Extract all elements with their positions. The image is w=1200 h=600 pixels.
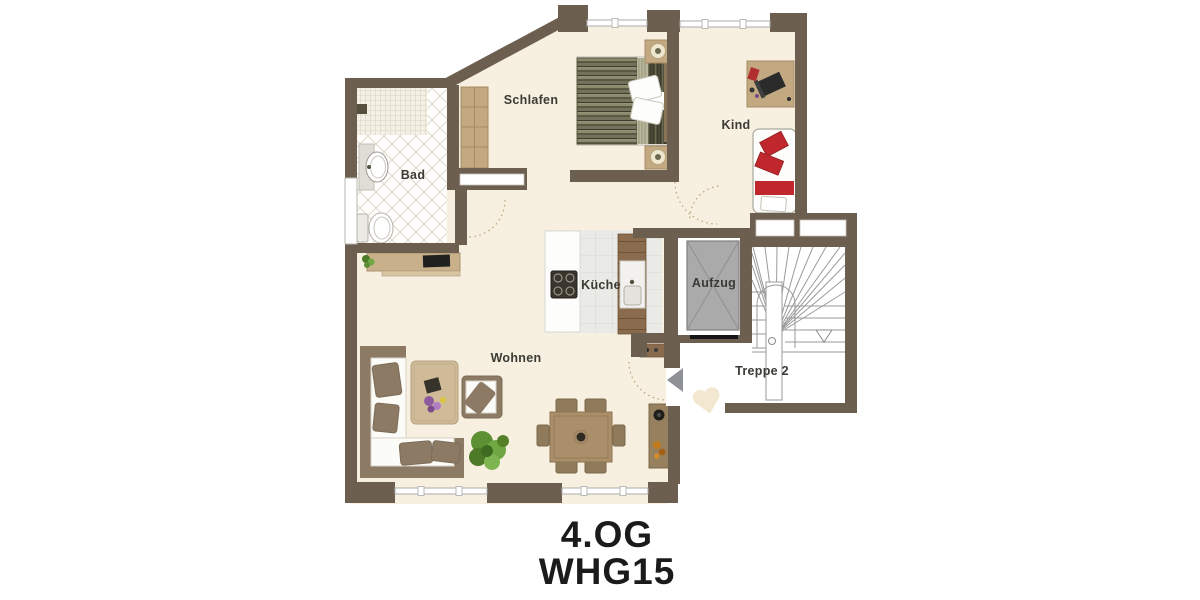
sliding-door-niche	[460, 174, 524, 185]
floor-plan-page: Bad Schlafen Kind Küche Aufzug Wohnen Tr…	[0, 0, 1200, 600]
kids-bed	[753, 129, 796, 213]
wall	[570, 170, 670, 182]
armchair	[462, 376, 502, 418]
wall	[740, 233, 752, 343]
wall	[845, 237, 857, 413]
apartment-title: WHG15	[539, 551, 676, 592]
shower-drain	[357, 104, 367, 114]
room-label-schlafen: Schlafen	[504, 93, 559, 107]
cushion	[431, 440, 461, 463]
stove	[551, 271, 577, 298]
kids-room-furniture	[747, 61, 796, 213]
kitchen-sink	[620, 261, 645, 308]
wall-pillar	[345, 482, 395, 503]
window	[395, 488, 487, 494]
window	[562, 488, 648, 494]
pillow	[761, 196, 787, 212]
room-label-treppe: Treppe 2	[735, 364, 789, 378]
double-bed	[577, 57, 669, 145]
floor-plan: Bad Schlafen Kind Küche Aufzug Wohnen Tr…	[0, 0, 1200, 600]
wall	[664, 238, 678, 335]
red-blanket	[755, 181, 794, 195]
wall	[455, 186, 467, 245]
wall-opening	[756, 220, 794, 236]
room-label-wohnen: Wohnen	[491, 351, 542, 365]
chair	[537, 425, 549, 446]
window	[680, 21, 770, 27]
chair	[585, 399, 606, 412]
wall	[345, 78, 455, 88]
coffee-table	[411, 361, 458, 424]
wall	[668, 406, 680, 484]
wall-pillar	[558, 5, 588, 32]
wall	[667, 32, 679, 182]
toilet	[357, 213, 393, 243]
plan-title: 4.OG WHG15	[539, 514, 676, 592]
cushion	[373, 403, 400, 433]
wall-opening	[800, 220, 846, 236]
desk	[747, 61, 794, 107]
wall	[345, 78, 357, 503]
chair	[613, 425, 625, 446]
wall	[795, 25, 807, 217]
heart-doormat	[691, 386, 723, 417]
room-label-bad: Bad	[401, 168, 426, 182]
cushion	[399, 441, 433, 466]
wall-pillar	[487, 483, 562, 503]
wall	[447, 85, 459, 175]
room-label-aufzug: Aufzug	[692, 276, 736, 290]
bathroom	[357, 88, 447, 243]
elevator-door	[690, 335, 738, 339]
wall-pillar	[647, 10, 680, 32]
wall	[725, 403, 857, 413]
stair-path-start	[769, 338, 776, 345]
chair	[556, 399, 577, 412]
wall	[664, 330, 680, 368]
wall-pillar	[648, 482, 678, 503]
wall	[345, 243, 459, 253]
wardrobe	[461, 87, 488, 168]
room-label-kueche: Küche	[581, 278, 621, 292]
staircase	[752, 247, 845, 403]
shower-tile-pattern	[357, 88, 427, 135]
sideboard-right	[649, 404, 669, 468]
tv	[423, 255, 450, 268]
cushion	[372, 362, 402, 397]
room-label-kind: Kind	[722, 118, 751, 132]
wall	[631, 333, 647, 357]
bathroom-window	[345, 178, 357, 244]
floor-title: 4.OG	[561, 514, 653, 555]
